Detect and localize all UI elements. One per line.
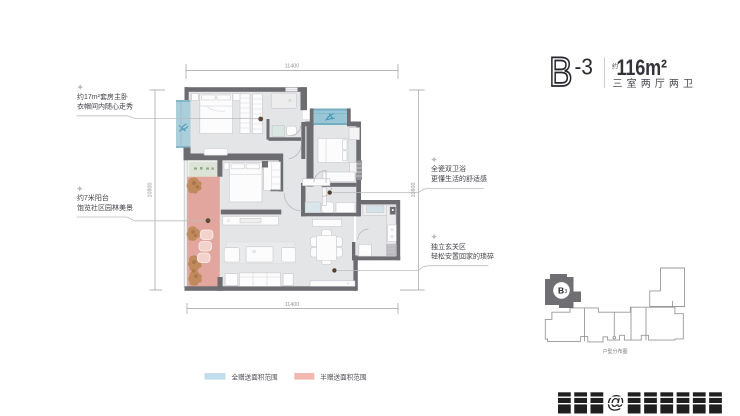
svg-text:全瓷双卫浴: 全瓷双卫浴: [431, 164, 466, 173]
svg-text:半赠送面积范围: 半赠送面积范围: [320, 372, 367, 381]
svg-text:11400: 11400: [285, 302, 300, 308]
svg-text:116m²: 116m²: [617, 56, 668, 80]
svg-text:户型分布图: 户型分布图: [602, 348, 627, 355]
svg-text:11400: 11400: [285, 64, 300, 70]
svg-text:约17m²套房主卧: 约17m²套房主卧: [77, 92, 128, 101]
svg-text:3: 3: [565, 289, 568, 295]
svg-text:独立玄关区: 独立玄关区: [431, 242, 466, 251]
svg-text:10800: 10800: [148, 183, 154, 198]
svg-text:B: B: [549, 49, 573, 96]
svg-text:B: B: [558, 286, 564, 296]
svg-text:饱览社区园林美景: 饱览社区园林美景: [77, 203, 133, 212]
svg-text:-3: -3: [575, 53, 593, 80]
svg-text:全赠送面积范围: 全赠送面积范围: [232, 372, 279, 381]
svg-text:更懂生活的舒适感: 更懂生活的舒适感: [431, 174, 487, 183]
svg-text:███@██████: ███@██████: [558, 391, 725, 414]
svg-text:衣帽间内随心走秀: 衣帽间内随心走秀: [77, 102, 133, 111]
svg-text:三室两厅两卫: 三室两厅两卫: [613, 77, 698, 90]
svg-text:轻松安置回家的琐碎: 轻松安置回家的琐碎: [431, 251, 494, 260]
svg-text:约7米阳台: 约7米阳台: [77, 193, 109, 202]
svg-text:10800: 10800: [411, 183, 417, 198]
